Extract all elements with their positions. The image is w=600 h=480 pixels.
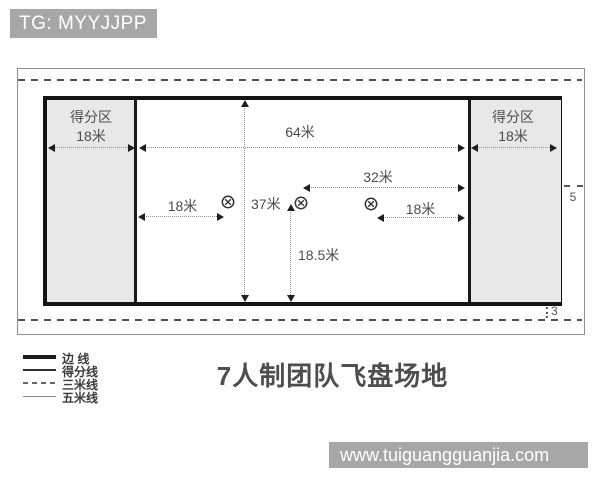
bottom-watermark-badge: www.tuiguangguanjia.com [329,442,588,468]
label-field-width: 37米 [251,194,281,214]
brick-mark-icon [294,196,308,210]
top-watermark-badge: TG: MYYJJPP [10,9,157,38]
endzone-left-label: 得分区 18米 [46,108,136,146]
endzone-right-width: 18米 [468,127,558,146]
five-meter-label: 5 [566,190,580,204]
label-half-width: 18.5米 [298,245,339,265]
label-brick-right: 18米 [393,199,448,219]
legend-line-medium [23,369,56,371]
endzone-right-label: 得分区 18米 [468,108,558,146]
endzone-right-name: 得分区 [468,108,558,127]
three-meter-tick [546,307,548,318]
legend-line-dashed [23,382,56,384]
three-meter-line-top [18,79,582,81]
frisbee-field-diagram: TG: MYYJJPP 得分区 18米 得分区 18米 64米 32米 [0,0,600,480]
page-title: 7人制团队飞盘场地 [160,356,505,393]
legend-label: 五米线 [62,389,98,406]
label-brick-left: 18米 [155,196,210,216]
label-half-central: 32米 [348,167,408,187]
brick-mark-icon [364,197,378,211]
three-meter-label: 3 [551,304,558,318]
five-meter-tick [564,185,583,187]
legend-line-thin [23,396,56,397]
legend-line-thick [23,355,56,359]
brick-mark-icon [221,195,235,209]
endzone-left-width: 18米 [46,127,136,146]
endzone-left-name: 得分区 [46,108,136,127]
three-meter-line-bottom [18,319,582,321]
label-central-length: 64米 [270,122,330,142]
